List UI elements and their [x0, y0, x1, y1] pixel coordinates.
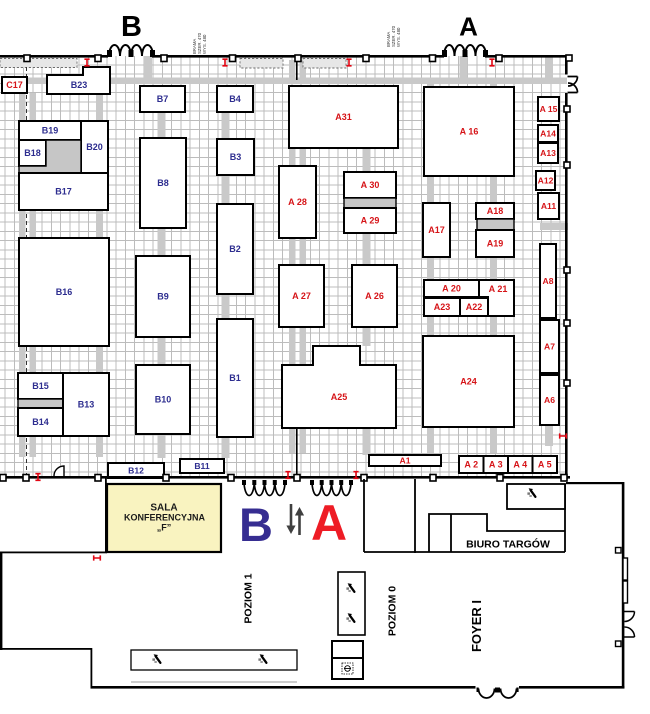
svg-text:BIURO TARGÓW: BIURO TARGÓW — [466, 538, 550, 551]
svg-text:A 20: A 20 — [442, 284, 461, 294]
svg-text:B12: B12 — [128, 466, 144, 476]
svg-text:WYS. 480: WYS. 480 — [202, 34, 207, 54]
svg-text:A17: A17 — [428, 225, 445, 235]
svg-text:A19: A19 — [487, 239, 504, 249]
svg-text:B16: B16 — [56, 287, 73, 297]
svg-text:B18: B18 — [24, 148, 41, 158]
svg-text:A 5: A 5 — [538, 460, 552, 470]
svg-text:POZIOM 1: POZIOM 1 — [243, 573, 255, 623]
svg-text:A13: A13 — [540, 148, 556, 158]
svg-text:B13: B13 — [78, 400, 95, 410]
svg-text:POZIOM 0: POZIOM 0 — [387, 586, 399, 636]
svg-text:A 26: A 26 — [365, 291, 384, 301]
svg-text:B: B — [239, 498, 273, 551]
svg-text:FOYER I: FOYER I — [469, 600, 484, 652]
svg-text:A 27: A 27 — [292, 291, 311, 301]
svg-text:A18: A18 — [487, 206, 504, 216]
svg-text:WYS. 480: WYS. 480 — [396, 27, 401, 47]
svg-text:A: A — [311, 495, 347, 551]
svg-text:A 15: A 15 — [540, 104, 558, 114]
svg-text:A 29: A 29 — [361, 216, 380, 226]
svg-text:A 4: A 4 — [513, 460, 527, 470]
svg-text:B17: B17 — [55, 187, 72, 197]
svg-text:B7: B7 — [157, 94, 169, 104]
svg-text:A 16: A 16 — [460, 127, 479, 137]
svg-text:A 3: A 3 — [489, 460, 503, 470]
svg-text:B9: B9 — [157, 292, 169, 302]
svg-text:A 30: A 30 — [361, 180, 380, 190]
svg-text:C17: C17 — [6, 80, 23, 90]
svg-text:KONFERENCYJNA: KONFERENCYJNA — [124, 513, 206, 523]
svg-text:B: B — [121, 11, 142, 43]
svg-text:A23: A23 — [434, 302, 451, 312]
svg-text:B10: B10 — [155, 395, 172, 405]
svg-text:A 28: A 28 — [288, 197, 307, 207]
svg-text:A 21: A 21 — [489, 284, 508, 294]
svg-text:B11: B11 — [194, 461, 210, 471]
svg-text:B19: B19 — [42, 126, 59, 136]
svg-text:A1: A1 — [400, 456, 411, 466]
svg-text:B8: B8 — [157, 178, 169, 188]
svg-text:A 2: A 2 — [464, 460, 478, 470]
svg-text:B1: B1 — [229, 373, 241, 383]
svg-text:B15: B15 — [32, 381, 49, 391]
svg-text:A6: A6 — [544, 395, 555, 405]
svg-text:A12: A12 — [538, 176, 554, 186]
svg-text:A11: A11 — [541, 201, 557, 211]
svg-text:B23: B23 — [71, 80, 88, 90]
svg-text:B4: B4 — [229, 94, 241, 104]
svg-text:A14: A14 — [540, 129, 556, 139]
svg-text:A: A — [459, 12, 478, 42]
svg-text:A31: A31 — [335, 112, 352, 122]
svg-text:A25: A25 — [331, 392, 348, 402]
svg-text:A7: A7 — [544, 342, 555, 352]
svg-text:A8: A8 — [543, 276, 554, 286]
svg-text:A22: A22 — [466, 302, 483, 312]
svg-text:B14: B14 — [32, 417, 49, 427]
svg-text:B3: B3 — [230, 152, 242, 162]
svg-text:B20: B20 — [86, 142, 103, 152]
svg-text:A24: A24 — [460, 377, 477, 387]
svg-text:B2: B2 — [229, 244, 241, 254]
svg-text:„F”: „F” — [157, 523, 172, 533]
